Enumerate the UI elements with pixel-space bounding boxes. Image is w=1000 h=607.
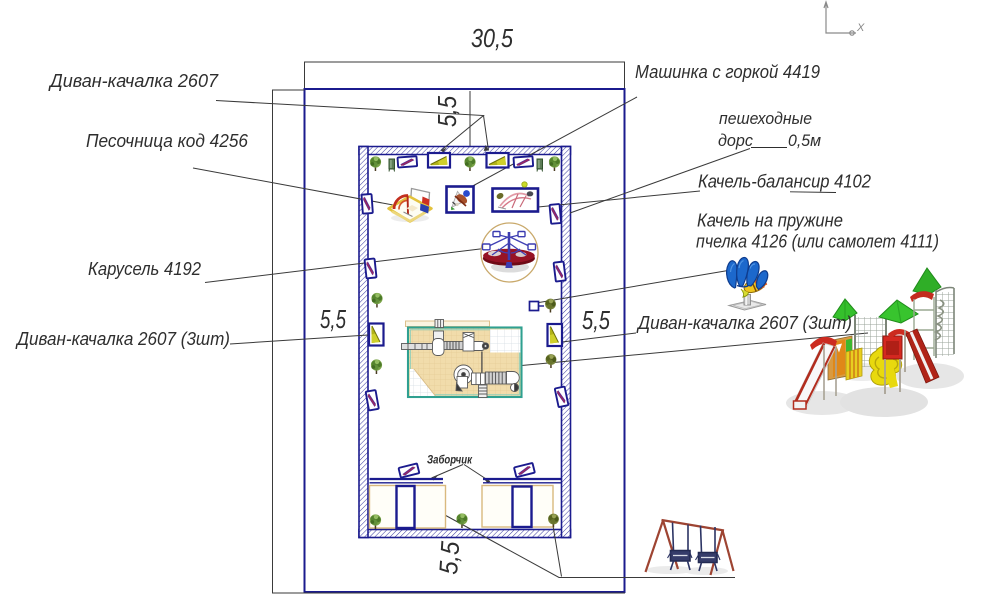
svg-text:пчелка 4126 (или самолет 4111): пчелка 4126 (или самолет 4111) xyxy=(696,232,939,252)
svg-text:Качель-балансир 4102: Качель-балансир 4102 xyxy=(698,172,871,192)
svg-text:5,5: 5,5 xyxy=(432,96,462,127)
svg-text:Качель на пружине: Качель на пружине xyxy=(697,211,843,231)
svg-text:Диван-качалка 2607: Диван-качалка 2607 xyxy=(48,71,219,91)
svg-text:Песочница код 4256: Песочница код 4256 xyxy=(86,131,249,151)
svg-text:5,5: 5,5 xyxy=(582,305,610,335)
svg-text:Диван-качалка 2607 (3шт): Диван-качалка 2607 (3шт) xyxy=(636,313,852,333)
svg-text:X: X xyxy=(856,22,865,34)
svg-text:Карусель 4192: Карусель 4192 xyxy=(88,259,201,279)
svg-text:5,5: 5,5 xyxy=(433,540,465,575)
svg-text:Диван-качалка 2607 (3шт): Диван-качалка 2607 (3шт) xyxy=(15,329,230,349)
svg-text:30,5: 30,5 xyxy=(471,23,513,53)
svg-text:пешеходные: пешеходные xyxy=(719,109,812,128)
svg-text:Заборчик: Заборчик xyxy=(427,455,473,467)
svg-text:Машинка с горкой 4419: Машинка с горкой 4419 xyxy=(635,62,820,82)
svg-text:5,5: 5,5 xyxy=(320,304,346,334)
svg-text:дорс: дорс xyxy=(718,131,753,150)
svg-text:0,5м: 0,5м xyxy=(788,131,821,150)
